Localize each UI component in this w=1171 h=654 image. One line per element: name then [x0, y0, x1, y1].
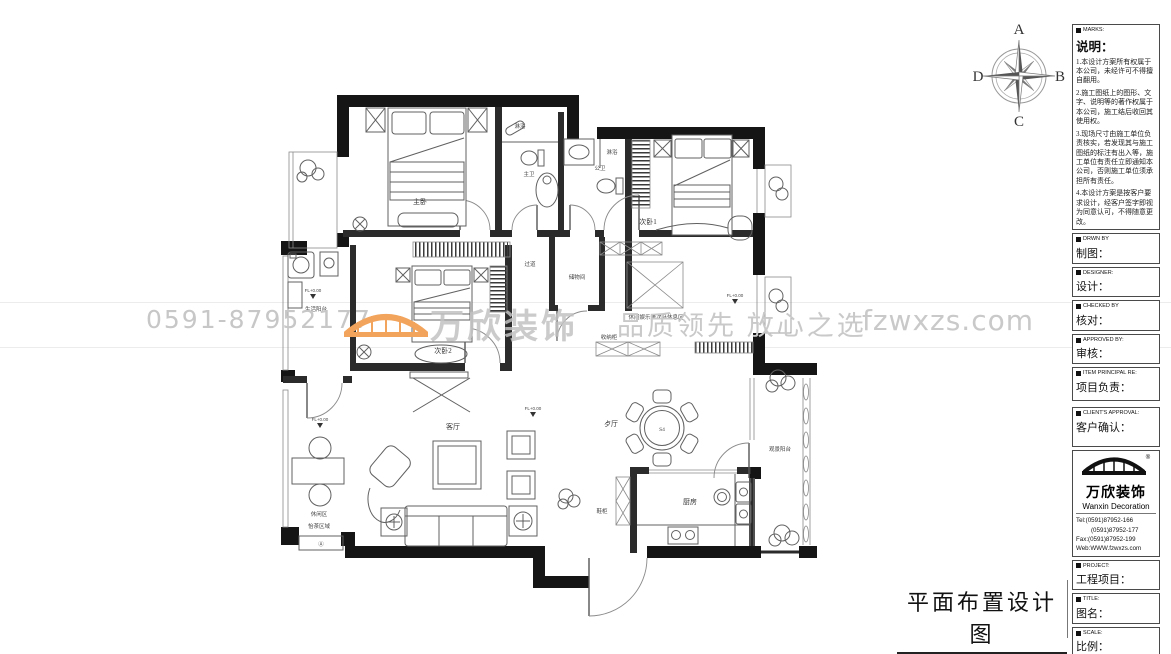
label-shower-2: 淋浴	[606, 148, 618, 156]
compass-rose: A B C D	[973, 20, 1065, 128]
sheet-title: 平面布置设计图	[897, 585, 1067, 654]
drwn-by-en: DRWN BY	[1076, 236, 1156, 243]
designer-zh: 设计：	[1076, 278, 1156, 294]
client-approval-zh: 客户确认：	[1076, 419, 1156, 435]
company-name-en: Wanxin Decoration	[1076, 502, 1156, 511]
leisure-area-furniture: Ⓐ	[292, 437, 344, 550]
sheet-title-text: 平面布置设计图	[897, 585, 1067, 649]
drwn-by-section: DRWN BY 制图：	[1072, 233, 1160, 264]
project-en: PROJECT:	[1076, 563, 1156, 570]
svg-text:FL+0.00: FL+0.00	[305, 288, 322, 293]
checked-by-zh: 核对：	[1076, 312, 1156, 328]
floor-plan: Ⓐ FL+0.00 FL+0.00 FL+0.00 FL+0.00 主卧 主卫 …	[279, 90, 824, 630]
marks-header-en: MARKS:	[1076, 27, 1156, 34]
compass-north-label: A	[1014, 22, 1025, 38]
compass-west-label: D	[973, 69, 984, 85]
label-shoe-cabinet: 鞋柜	[596, 507, 608, 515]
note-4: 4.本设计方案是按客户要求设计，经客户签字即视为同意认可，不得随意更改。	[1076, 189, 1156, 227]
master-bath-fixtures	[502, 120, 558, 207]
drawing-title-section: TITLE: 图名：	[1072, 593, 1160, 624]
label-bedroom2: 次卧2	[434, 346, 452, 355]
svg-text:FL+0.00: FL+0.00	[727, 293, 744, 298]
label-master-bath: 主卫	[523, 170, 535, 178]
label-corridor: 过道	[524, 260, 536, 268]
note-1: 1.本设计方案所有权属于本公司，未经许可不得擅自翻用。	[1076, 58, 1156, 86]
principal-section: ITEM PRINCIPAL RE: 项目负责：	[1072, 367, 1160, 401]
bridge-logo-black-icon	[1082, 455, 1146, 477]
client-approval-en: CLIENT'S APPROVAL:	[1076, 410, 1156, 417]
client-approval-section: CLIENT'S APPROVAL: 客户确认：	[1072, 407, 1160, 447]
view-balcony-plants	[766, 370, 799, 546]
label-kitchen: 厨房	[683, 497, 697, 506]
principal-en: ITEM PRINCIPAL RE:	[1076, 370, 1156, 377]
scale-zh: 比例：	[1076, 638, 1156, 654]
service-balcony-fixtures	[288, 252, 338, 308]
marks-header-zh: 说明：	[1076, 36, 1156, 55]
label-dining: 歺厅	[604, 420, 618, 428]
label-cabinet: 收纳柜	[601, 333, 618, 341]
note-2: 2.施工图纸上的图形、文字、说明等的著作权属于本公司，施工结后收回其使用权。	[1076, 89, 1156, 127]
bedroom2-furniture	[357, 266, 507, 412]
checked-by-en: CHECKED BY	[1076, 303, 1156, 310]
scale-section: SCALE: 比例：	[1072, 627, 1160, 654]
company-contacts: Tel:(0591)87952-166 (0591)87952-177 Fax:…	[1076, 513, 1156, 553]
compass-east-label: B	[1055, 69, 1065, 85]
label-guest-bath: 公卫	[594, 165, 606, 172]
drawing-title-zh: 图名：	[1076, 605, 1156, 621]
label-living: 客厅	[446, 422, 460, 431]
marks-section: MARKS: 说明： 1.本设计方案所有权属于本公司，未经许可不得擅自翻用。 2…	[1072, 24, 1160, 230]
label-view-balcony: 观景阳台	[769, 445, 792, 453]
title-block: MARKS: 说明： 1.本设计方案所有权属于本公司，未经许可不得擅自翻用。 2…	[1072, 24, 1160, 654]
approved-by-en: APPROVED BY:	[1076, 337, 1156, 344]
label-master: 主卧	[413, 197, 427, 206]
registered-mark: ®	[1146, 455, 1150, 461]
label-storage: 储物间	[569, 273, 586, 281]
project-section: PROJECT: 工程项目：	[1072, 560, 1160, 591]
floorplan-sheet: Ⓐ FL+0.00 FL+0.00 FL+0.00 FL+0.00 主卧 主卫 …	[0, 0, 1171, 654]
company-fax: Fax:(0591)87952-199	[1076, 535, 1156, 544]
dining-table-tag: S4	[659, 427, 665, 433]
note-3: 3.现场尺寸由施工单位负责核实，若发现其与施工图纸的标注有出入等，施工单位有责任…	[1076, 130, 1156, 187]
drwn-by-zh: 制图：	[1076, 245, 1156, 261]
exterior-walls	[281, 95, 817, 588]
scale-en: SCALE:	[1076, 630, 1156, 637]
storage-and-cabinets	[596, 242, 753, 356]
level-marks: FL+0.00 FL+0.00 FL+0.00 FL+0.00	[305, 288, 744, 428]
company-tel2: (0591)87952-177	[1076, 526, 1156, 535]
label-shower-1: 淋浴	[514, 122, 526, 130]
compass-cardinal-arms	[983, 40, 1055, 112]
company-logo-box: ® 万欣装饰 Wanxin Decoration Tel:(0591)87952…	[1072, 450, 1160, 556]
label-bedroom1: 次卧1	[639, 217, 657, 226]
company-name: 万欣装饰	[1076, 482, 1156, 502]
appliance-tag: Ⓐ	[318, 540, 324, 548]
checked-by-section: CHECKED BY 核对：	[1072, 300, 1160, 331]
label-flex-area: 休闲娱乐兼次卧休息区	[628, 313, 684, 321]
label-tea: 怡茶区域	[308, 522, 331, 530]
label-service-balcony: 生活阳台	[305, 305, 328, 313]
compass-south-label: C	[1014, 114, 1024, 128]
project-zh: 工程项目：	[1076, 571, 1156, 587]
approved-by-section: APPROVED BY: 审核：	[1072, 334, 1160, 365]
watermark-site: fzwxzs.com	[862, 304, 1034, 337]
designer-en: DESIGNER:	[1076, 270, 1156, 277]
drawing-title-en: TITLE:	[1076, 596, 1156, 603]
living-room-furniture	[367, 431, 580, 546]
designer-section: DESIGNER: 设计：	[1072, 267, 1160, 298]
label-leisure: 休闲区	[311, 510, 328, 518]
svg-text:FL+0.00: FL+0.00	[312, 417, 329, 422]
principal-zh: 项目负责：	[1076, 379, 1156, 395]
company-tel1: Tel:(0591)87952-166	[1076, 516, 1156, 525]
frame-line	[1067, 580, 1068, 638]
company-web: Web:WWW.fzwxzs.com	[1076, 544, 1156, 553]
svg-text:FL+0.00: FL+0.00	[525, 406, 542, 411]
approved-by-zh: 审核：	[1076, 345, 1156, 361]
